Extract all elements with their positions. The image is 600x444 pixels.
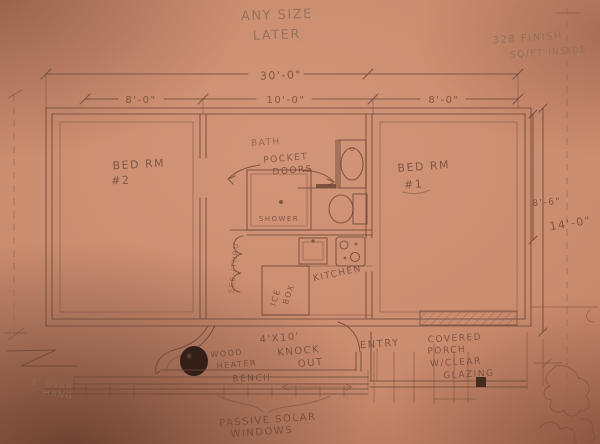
room-label-bed1-2: #1 [404, 177, 424, 191]
passive-solar-leaders [218, 396, 330, 413]
label-wood-heater-2: HEATER [216, 358, 257, 370]
note-sqft-2: SQ/FT INSIDE [510, 45, 588, 60]
label-porch-1: COVERED [427, 333, 482, 346]
shower-drain [279, 200, 283, 204]
label-wood-heater-1: WOOD [210, 348, 243, 360]
pocket-door-leaf [316, 184, 336, 188]
note-any-size-1: ANY SIZE [241, 7, 313, 25]
room-label-bed2-2: #2 [111, 174, 131, 188]
label-knockout-2: KNOCK [277, 344, 321, 359]
label-porch-3: W/CLEAR [430, 357, 482, 370]
label-icebox-1: ICE [269, 288, 283, 307]
bathroom: BATH SHOWER POCKET DOORS [228, 137, 367, 230]
roof-break-symbol [7, 350, 78, 366]
label-porch-2: PORCH [427, 345, 466, 357]
room-label-kitchen: KITCHEN [312, 264, 362, 284]
label-knockout-1: 4'X10' [259, 331, 300, 345]
dimension-lines-top: 30'-0" 8'-0" 10'-0" 8'-0" [41, 68, 523, 114]
bench-south-wall: BENCH PASSIVE SOLAR WINDOWS [44, 370, 368, 440]
label-icebox-2: BOX [281, 283, 296, 306]
label-pocket-doors-1: POCKET [263, 152, 309, 166]
stove-cooktop [336, 237, 365, 266]
label-entry: ENTRY [360, 338, 400, 352]
dim-overall-depth: 14'-0" [549, 214, 593, 233]
dim-right-inner: 8'-6" [532, 197, 562, 209]
kitchen: ICE BOX KITCHEN SEE-/THRU [227, 236, 372, 315]
room-label-bed2-1: BED RM [112, 157, 165, 173]
note-sqft-1: 328 FINISH [492, 31, 563, 47]
blueprint-paper: 30'-0" 8'-0" 10'-0" 8'-0" 8'-6" 14'-0" [0, 0, 600, 444]
dim-overall-width: 30'-0" [260, 68, 302, 82]
pencil-notes: ANY SIZE LATER 328 FINISH SQ/FT INSIDE [241, 7, 588, 61]
note-any-size-2: LATER [253, 27, 302, 44]
label-knockout-3: OUT [297, 357, 324, 370]
label-shower: SHOWER [259, 215, 299, 223]
overhang: 2' OVER HANG [7, 350, 78, 401]
floor-plan-drawing: 30'-0" 8'-0" 10'-0" 8'-0" 8'-6" 14'-0" [0, 0, 600, 444]
toilet-tank [353, 194, 367, 224]
toilet-bowl [329, 195, 353, 223]
dim-bay-left: 8'-0" [125, 95, 156, 106]
dim-bay-right: 8'-0" [428, 95, 459, 106]
wood-heater-stove [180, 346, 208, 376]
label-see-thru: SEE-/THRU [227, 242, 240, 294]
dimension-lines-right: 8'-6" 14'-0" [529, 104, 598, 386]
room-label-bath: BATH [251, 137, 281, 149]
room-label-bed1-1: BED RM [397, 158, 450, 175]
dim-bay-mid: 10'-0" [266, 95, 305, 106]
window-ticks [62, 386, 344, 397]
glazed-window-strip [420, 311, 517, 325]
label-porch-4: GLAZING [443, 369, 495, 382]
bath-sink [341, 148, 363, 180]
vestibule: 4'X10' KNOCK OUT ENTRY WOOD HEATER [156, 322, 400, 381]
label-bench: BENCH [232, 373, 271, 384]
